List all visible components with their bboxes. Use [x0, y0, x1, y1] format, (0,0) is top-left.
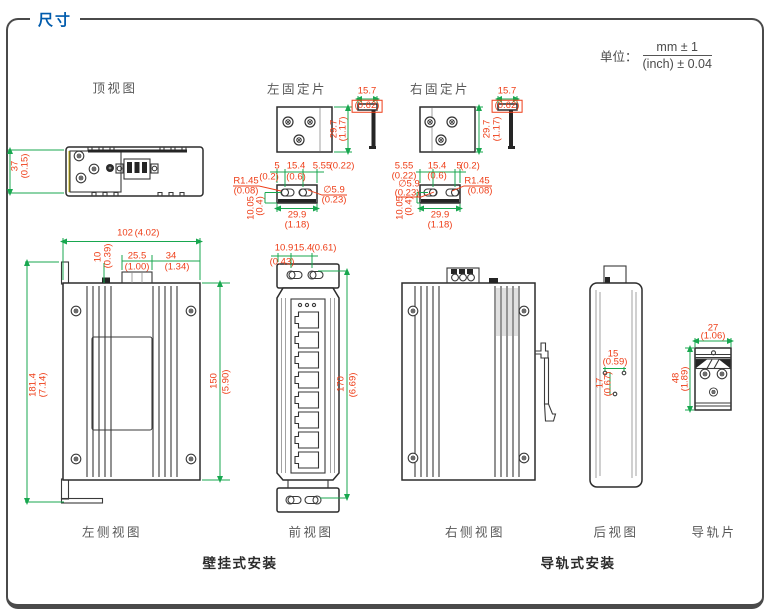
dim-lplate-slot-mm: 5.55: [313, 161, 332, 171]
view-label-top: 顶视图: [92, 78, 137, 97]
dimension-sheet: 尺寸 单位： mm ± 1 (inch) ± 0.04: [0, 0, 770, 616]
section-label-wall-mount: 壁挂式安装: [203, 552, 278, 572]
dim-front-hole-span-in: (6.69): [348, 373, 358, 398]
dim-top-depth-in: (0.15): [20, 154, 30, 179]
dim-lplate-slot-in: (0.22): [330, 161, 355, 171]
view-label-rail-plate: 导轨片: [691, 522, 736, 541]
dim-rear-pitch-in: (0.59): [603, 357, 628, 367]
dim-rear-drop-in: (0.67): [603, 372, 613, 397]
view-label-right-plate: 右固定片: [410, 79, 470, 98]
view-label-front: 前视图: [288, 522, 333, 541]
dim-front-edge-in: (0.43): [270, 257, 295, 267]
dim-lside-offset-in: (1.34): [165, 262, 190, 272]
rear-view-drawing: [590, 266, 642, 487]
dim-lplate-pitch-in: (0.6): [286, 172, 306, 182]
dim-lplate-flange-mm: 15.7: [358, 86, 377, 96]
dim-lplate-dia-in: (0.23): [322, 195, 347, 205]
dim-lplate-radius-in: (0.08): [234, 186, 259, 196]
view-label-left-plate: 左固定片: [267, 79, 327, 98]
dim-rplate-flange-in: (0.62): [492, 100, 523, 113]
top-view-drawing: [8, 147, 203, 196]
dim-front-hole-span-mm: 170: [336, 376, 346, 392]
dim-lside-width-mm: 102: [117, 228, 133, 238]
dim-rplate-depth-in: (0.4): [404, 196, 414, 216]
dim-rplate-pitch-in: (0.6): [427, 171, 447, 181]
view-label-rear: 后视图: [593, 522, 638, 541]
dim-rail-height-in: (1.89): [680, 367, 690, 392]
dim-lside-width-in: (4.02): [135, 228, 160, 238]
left-side-view-drawing: [25, 238, 230, 503]
dim-lside-offset-mm: 34: [166, 251, 177, 261]
dim-lplate-flange-in: (0.62): [352, 100, 383, 113]
section-label-rail-mount: 导轨式安装: [541, 552, 616, 572]
dim-lside-bump-in: (0.39): [103, 244, 113, 269]
dim-lplate-edge-mm: 5: [274, 161, 279, 171]
dim-front-edge-mm: 10.9: [275, 243, 294, 253]
dim-lplate-pitch-mm: 15.4: [287, 161, 306, 171]
dim-lside-block-in: (1.00): [125, 262, 150, 272]
dim-rplate-height-in: (1.17): [492, 117, 502, 142]
view-label-right-side: 右侧视图: [445, 522, 505, 541]
dim-rplate-edge-in: (0.2): [460, 161, 480, 171]
rail-plate-drawing: [685, 338, 731, 410]
dim-front-pitch-mm: 15.4: [294, 243, 313, 253]
right-side-view-drawing: [402, 268, 556, 480]
dim-rplate-radius-in: (0.08): [468, 186, 493, 196]
dim-rail-width-in: (1.06): [701, 331, 726, 341]
dim-lplate-width-in: (1.18): [285, 220, 310, 230]
dim-lside-block-mm: 25.5: [128, 251, 147, 261]
dim-lside-body-height-in: (5.90): [221, 370, 231, 395]
dim-front-pitch-in: (0.61): [312, 243, 337, 253]
dim-lside-body-height-mm: 150: [209, 373, 219, 389]
dim-lplate-edge-in: (0.2): [259, 172, 279, 182]
dim-rplate-width-in: (1.18): [428, 220, 453, 230]
dim-lplate-height-in: (1.17): [338, 117, 348, 142]
dim-rplate-flange-mm: 15.7: [498, 86, 517, 96]
view-label-left-side: 左侧视图: [82, 522, 142, 541]
dim-lside-total-height-in: (7.14): [38, 373, 48, 398]
dim-lplate-depth-in: (0.4): [255, 196, 265, 216]
